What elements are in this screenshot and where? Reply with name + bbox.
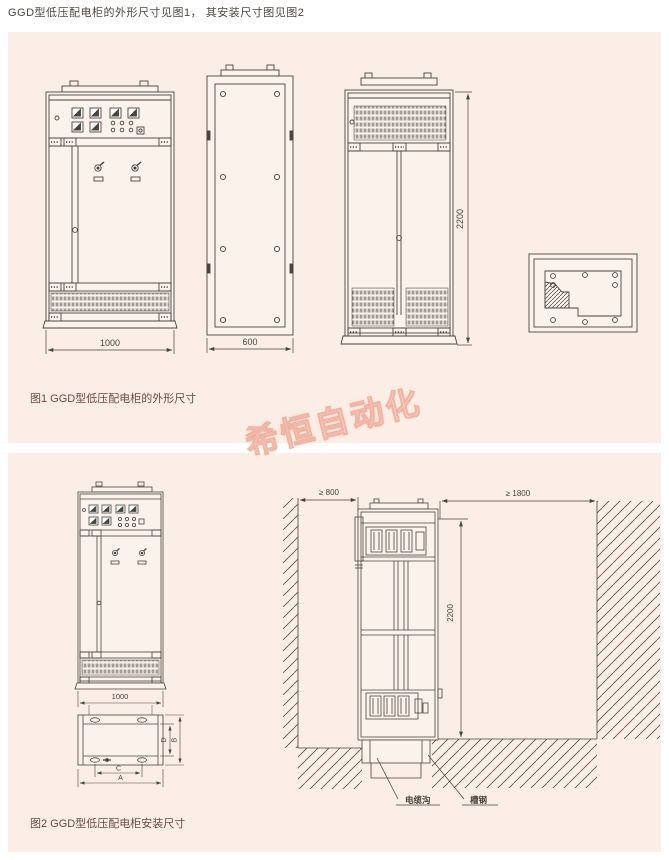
figure2-caption: 图2 GGD型低压配电柜安装尺寸 xyxy=(30,815,185,831)
left-ground-hatch xyxy=(298,748,362,789)
cabinet-front-view xyxy=(43,81,177,328)
page-title: GGD型低压配电柜的外形尺寸见图1， 其安装尺寸图见图2 xyxy=(8,4,304,20)
figure1-caption: 图1 GGD型低压配电柜的外形尺寸 xyxy=(30,390,196,406)
left-wall-hatch xyxy=(283,498,298,748)
dim-width-label: 1000 xyxy=(100,338,120,348)
dim-depth-label: 600 xyxy=(242,337,257,347)
figure1-panel: 1000 600 xyxy=(8,32,661,443)
cabinet-top-view xyxy=(529,254,637,332)
installation-section xyxy=(283,498,660,789)
right-ground-hatch xyxy=(432,739,597,788)
cable-trench-label: 电缆沟 xyxy=(405,795,431,805)
vent-grille xyxy=(82,660,159,675)
dim-clear-right-label: ≥ 1800 xyxy=(506,489,531,498)
figure2-panel: 1000 D B C xyxy=(8,453,661,852)
channel-steel-label: 槽钢 xyxy=(470,795,488,805)
vent-grille xyxy=(352,288,394,326)
dim-front-width: 1000 xyxy=(46,330,174,354)
dim-d-label: D xyxy=(161,737,168,742)
dim-width-label: 1000 xyxy=(112,692,129,701)
dim-c-label: C xyxy=(116,766,121,773)
dim-b-label: B xyxy=(172,737,179,742)
install-dims: ≥ 800 ≥ 1800 2200 xyxy=(300,488,595,737)
vent-grille xyxy=(51,293,169,311)
vent-grille xyxy=(354,106,446,140)
cabinet-rear-view xyxy=(341,73,457,344)
vent-grille xyxy=(406,288,448,326)
dim-height-label: 2200 xyxy=(455,209,465,229)
figure1-drawing: 1000 600 xyxy=(8,32,661,443)
dim-side-depth: 600 xyxy=(207,337,293,353)
dim-clear-left-label: ≥ 800 xyxy=(319,488,340,497)
right-wall-hatch xyxy=(597,501,660,739)
dim-rear-height: 2200 xyxy=(455,92,472,345)
dim-install-height-label: 2200 xyxy=(446,604,455,622)
cabinet-side-view xyxy=(207,65,293,335)
channel-steel-base xyxy=(362,740,430,763)
page: GGD型低压配电柜的外形尺寸见图1， 其安装尺寸图见图2 xyxy=(0,0,669,860)
cabinet-side-section xyxy=(355,499,442,763)
dim-front-width-small: 1000 xyxy=(78,691,163,707)
dim-a-label: A xyxy=(118,775,123,782)
figure2-drawing: 1000 D B C xyxy=(8,453,661,852)
cabinet-front-view-small xyxy=(75,482,166,689)
base-plan-view xyxy=(78,705,163,765)
